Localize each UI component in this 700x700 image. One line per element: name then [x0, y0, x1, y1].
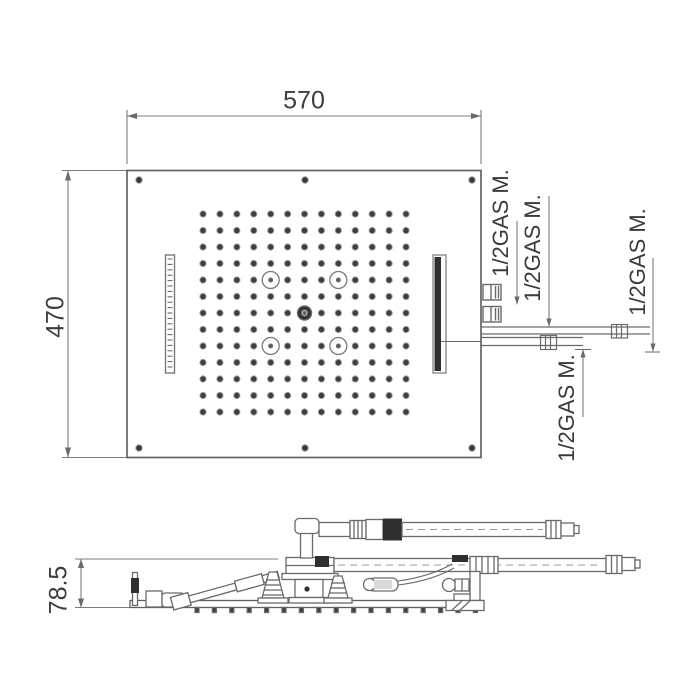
lower-pipe-assembly	[334, 555, 640, 574]
upper-pipe-assembly	[295, 519, 579, 559]
dim-side-height-label: 78.5	[47, 566, 72, 615]
slot-ticks	[168, 259, 173, 367]
left-pin	[131, 573, 139, 606]
dim-width-label: 570	[283, 89, 325, 114]
inlet-connector-2	[483, 307, 501, 323]
connection-label-4: 1/2GAS M.	[556, 354, 578, 462]
waterfall-slot-left	[166, 255, 175, 373]
inlet-connector-1	[483, 285, 501, 301]
connection-label-2: 1/2GAS M.	[522, 194, 544, 302]
center-nozzle	[298, 306, 312, 320]
spray-nozzle-ticks	[195, 608, 477, 613]
supply-pipe-upper	[481, 325, 660, 353]
dimension-width	[127, 110, 481, 164]
dimension-height	[62, 171, 127, 458]
connection-label-1: 1/2GAS M.	[490, 169, 512, 277]
waterfall-slot-right	[433, 255, 446, 373]
dim-height-label: 470	[44, 296, 69, 338]
drawing-lines	[0, 0, 700, 700]
side-view	[75, 519, 640, 613]
connection-label-3: 1/2GAS M.	[627, 208, 649, 316]
technical-drawing-shower-head: 570 470 78.5 1/2GAS M. 1/2GAS M. 1/2GAS …	[0, 0, 700, 700]
